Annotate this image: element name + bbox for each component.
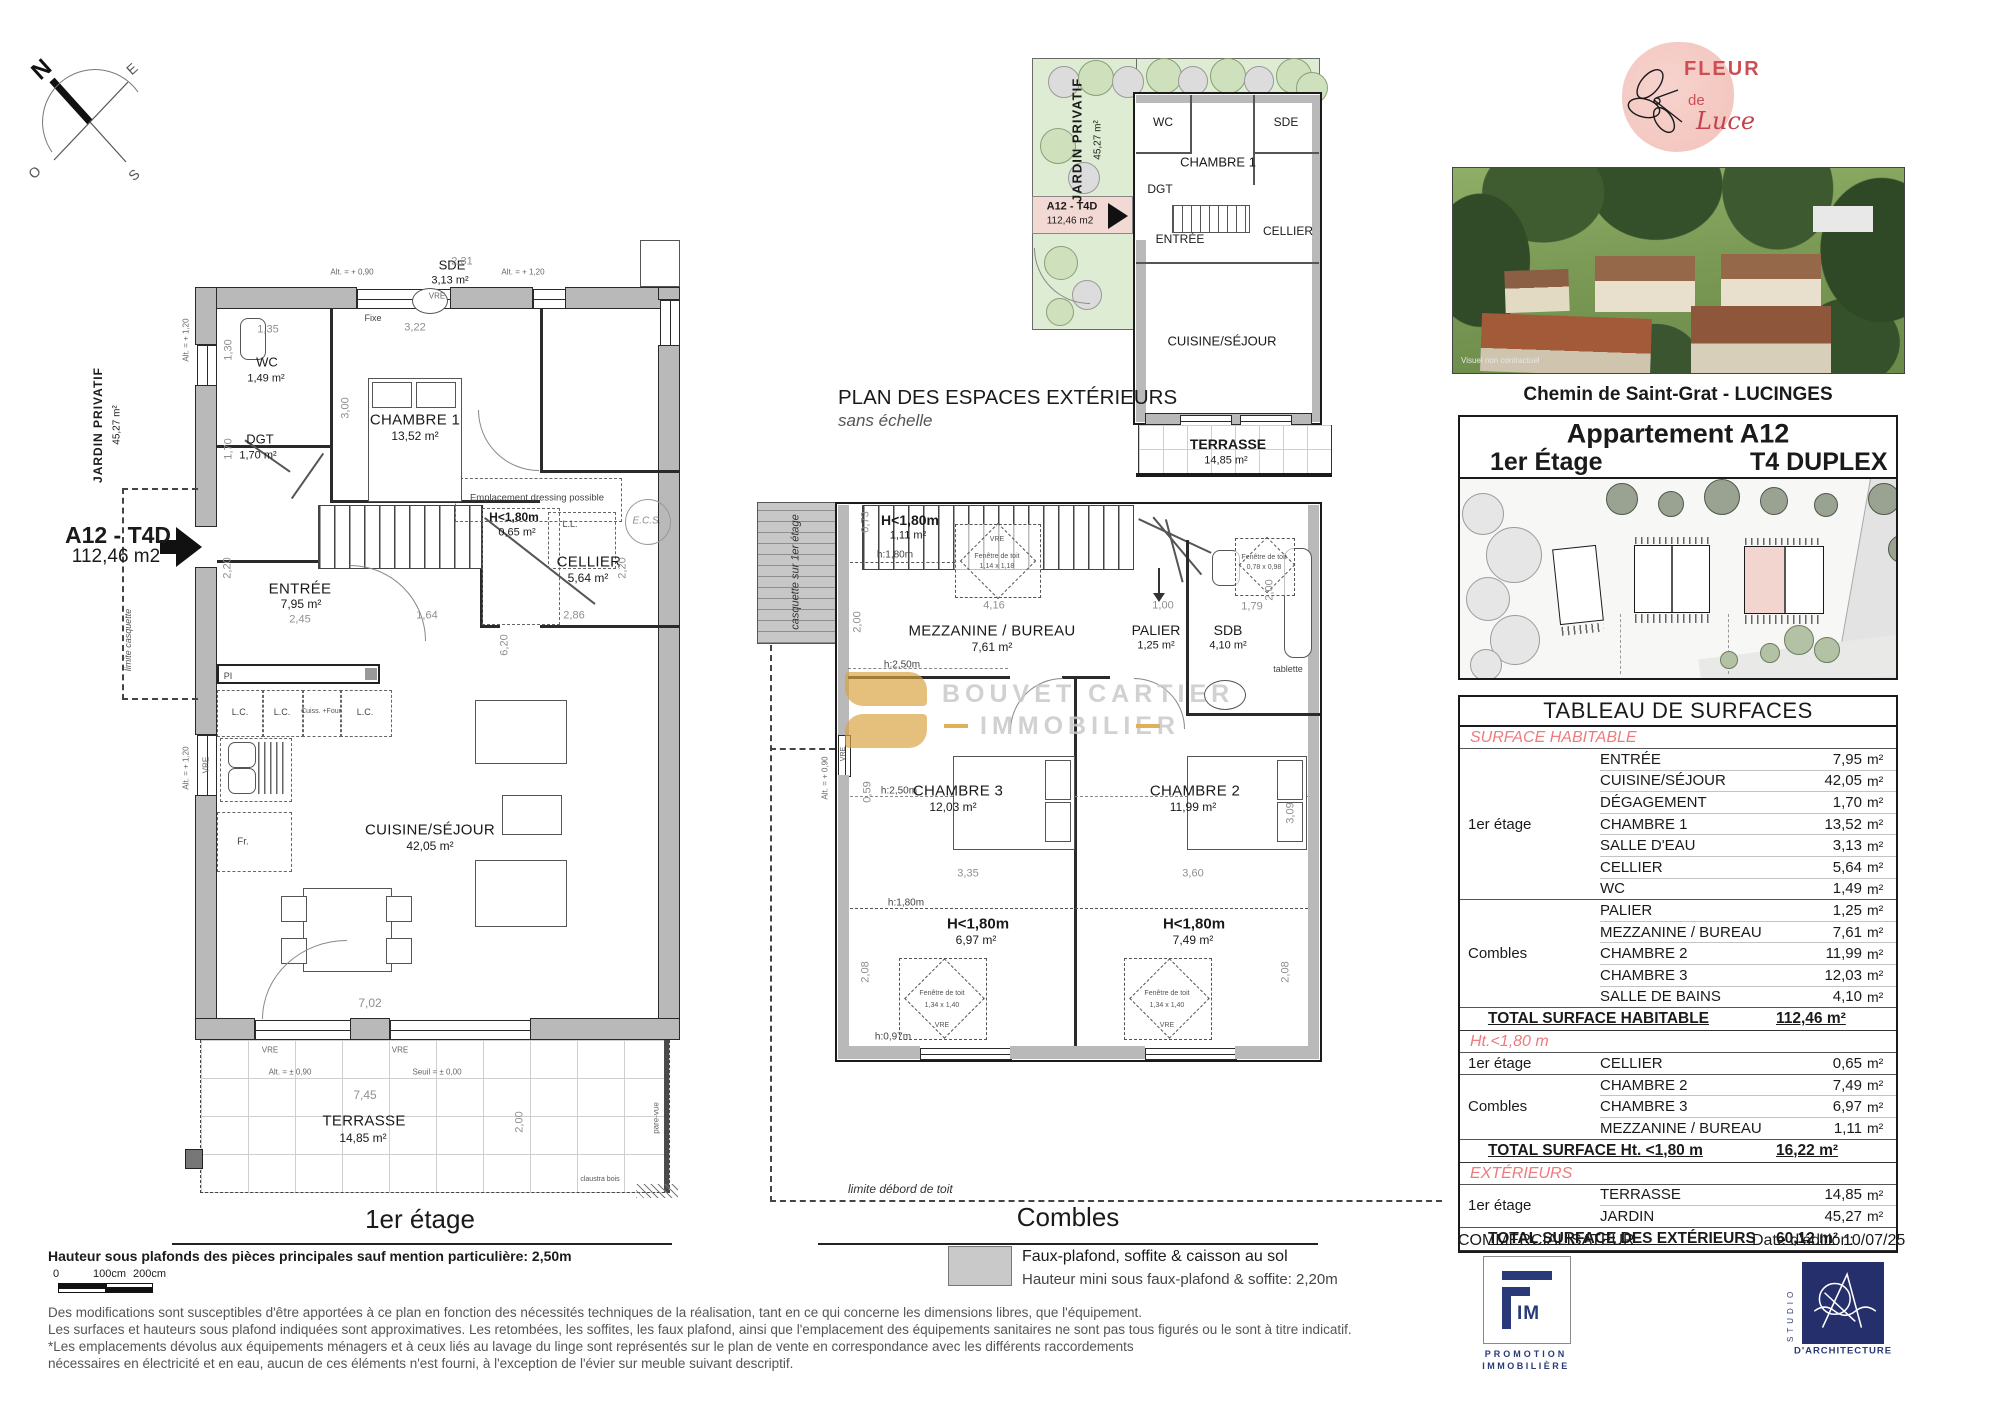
disclaimer-line: *Les emplacements dévolus aux équipement… <box>48 1339 1134 1355</box>
site-building <box>1552 545 1604 625</box>
title-underline <box>172 1243 672 1245</box>
table-group: 1er étageTERRASSE14,85m²JARDIN45,27m² <box>1460 1185 1896 1228</box>
table-row: CHAMBRE 211,99m² <box>1600 942 1896 964</box>
studio-caption: D'ARCHITECTURE <box>1794 1347 1892 1358</box>
washer-label: L.L. <box>562 519 577 529</box>
dim-label: 3,09 <box>1285 802 1298 823</box>
unit-code: A12 - T4D <box>1047 201 1098 214</box>
room-area-terrasse: 14,85 m² <box>339 1132 386 1146</box>
watermark-text: BOUVET CARTIER <box>942 680 1234 709</box>
chair <box>386 896 412 922</box>
dim-label: 6,20 <box>499 634 512 655</box>
photo-house <box>1721 254 1821 310</box>
cabinet-label: L.C. <box>232 707 249 717</box>
room-label-chambre1: CHAMBRE 1 <box>1180 156 1256 171</box>
surface-table-body: SURFACE HABITABLE1er étageENTRÉE7,95m²CU… <box>1460 727 1896 1251</box>
pillow <box>372 382 412 408</box>
table-room-name: PALIER <box>1600 902 1806 919</box>
alt-annotation: Alt. = + 0,90 <box>330 267 373 276</box>
tree-icon <box>1720 651 1738 669</box>
room-area-cellier: 5,64 m² <box>568 572 609 586</box>
table-row: WC1,49m² <box>1600 878 1896 900</box>
dim-label: 1,30 <box>223 339 236 360</box>
table-room-value: 1,49 <box>1806 880 1862 897</box>
room-label-cuisine: CUISINE/SÉJOUR <box>1167 335 1276 350</box>
tree-icon <box>1486 527 1542 583</box>
unit-area: 112,46 m2 <box>72 546 160 568</box>
table-group-label: 1er étage <box>1460 1185 1600 1227</box>
dim-label: 1,70 <box>223 438 236 459</box>
interior-wall <box>1062 676 1110 679</box>
room-label-chambre1: CHAMBRE 1 <box>370 411 460 428</box>
table-row: CELLIER5,64m² <box>1600 856 1896 878</box>
dim-label: 2,00 <box>514 1111 527 1132</box>
photo-house <box>1813 206 1873 232</box>
fixe-label: Fixe <box>364 313 381 323</box>
site-building <box>1744 546 1824 614</box>
room-label-wc: WC <box>1153 116 1173 130</box>
window <box>660 300 680 347</box>
coffee-table <box>502 795 562 835</box>
table-room-name: CHAMBRE 3 <box>1600 1098 1806 1115</box>
balcony-hatch <box>1635 537 1709 544</box>
table-row: TERRASSE14,85m² <box>1600 1185 1896 1206</box>
unit-arrow-icon <box>1108 203 1128 229</box>
interior-wall <box>1190 95 1192 153</box>
sink-drainer <box>258 742 286 794</box>
watermark-logo-icon <box>845 672 927 706</box>
tree-icon <box>1704 479 1740 515</box>
table-rooms: CHAMBRE 27,49m²CHAMBRE 36,97m²MEZZANINE … <box>1600 1075 1896 1139</box>
table-room-name: SALLE D'EAU <box>1600 837 1806 854</box>
tree-icon <box>1462 493 1504 535</box>
table-room-name: TERRASSE <box>1600 1186 1806 1203</box>
tree-icon <box>1760 643 1780 663</box>
tree-icon <box>1146 58 1182 94</box>
height-label: h:1,80m <box>877 549 913 561</box>
sink-bowl <box>228 768 256 794</box>
wall-segment <box>195 795 217 1040</box>
window-door <box>255 1020 352 1040</box>
table-room-name: CHAMBRE 1 <box>1600 816 1806 833</box>
plan2-title: Combles <box>1017 1203 1120 1233</box>
edition-date-value: 10/07/25 <box>1843 1232 1905 1250</box>
vre-label: VRE <box>201 757 210 773</box>
height-line <box>848 668 1008 669</box>
table-group-label: Combles <box>1460 900 1600 1007</box>
surface-table: TABLEAU DE SURFACES SURFACE HABITABLE1er… <box>1458 695 1898 1253</box>
interior-wall <box>1253 95 1255 185</box>
table-rooms: CELLIER0,65m² <box>1600 1053 1896 1074</box>
table-room-name: JARDIN <box>1600 1208 1806 1225</box>
plan1-title: 1er étage <box>365 1205 475 1235</box>
photo-house <box>1691 306 1831 374</box>
table-total-label: TOTAL SURFACE HABITABLE <box>1460 1010 1776 1028</box>
wall-segment <box>838 1046 920 1059</box>
fim-glyph-bar <box>1502 1287 1530 1296</box>
dim-label: 3,35 <box>957 868 978 881</box>
tree-icon <box>1760 487 1788 515</box>
project-address: Chemin de Saint-Grat - LUCINGES <box>1523 384 1832 406</box>
jardin-privatif-area: 45,27 m² <box>111 405 123 444</box>
wall-segment <box>1136 95 1319 103</box>
unit-highlight <box>1745 547 1784 613</box>
logo-word-fleur: FLEUR <box>1684 58 1761 81</box>
kitchen-beam <box>217 664 380 684</box>
seuil-annotation: Seuil = ± 0,00 <box>412 1067 461 1076</box>
watermark-logo-icon <box>845 714 927 748</box>
table-room-value: 14,85 <box>1806 1186 1862 1203</box>
room-label-chambre3: CHAMBRE 3 <box>913 782 1003 799</box>
roof-window-label: Fenêtre de toit <box>919 990 964 998</box>
party-wall <box>1784 547 1786 613</box>
table-row: SALLE DE BAINS4,10m² <box>1600 986 1896 1008</box>
roof-window-size: 1,34 x 1,40 <box>1150 1002 1185 1010</box>
room-label-cellier: CELLIER <box>557 553 622 570</box>
roof-window-size: 0,78 x 0,98 <box>1247 564 1282 572</box>
vre-label: VRE <box>392 1045 408 1054</box>
site-plan <box>1460 479 1896 678</box>
compass-s: S <box>125 166 143 184</box>
table-room-name: DÉGAGEMENT <box>1600 794 1806 811</box>
table-section-label: SURFACE HABITABLE <box>1460 727 1896 749</box>
roof-limit-label: limite débord de toit <box>848 1183 953 1197</box>
table-room-unit: m² <box>1862 902 1896 918</box>
chair <box>281 896 307 922</box>
wall-segment <box>658 345 680 1040</box>
tablette-label: tablette <box>1273 664 1303 674</box>
jardin-privatif-label: JARDIN PRIVATIF <box>1071 78 1086 202</box>
room-label-terrasse: TERRASSE <box>322 1112 405 1129</box>
alt-annotation: Alt. = + 0,90 <box>820 756 829 799</box>
disclaimer-line: Les surfaces et hauteurs sous plafond in… <box>48 1322 1352 1338</box>
room-area-wc: 1,49 m² <box>247 373 284 386</box>
table-room-name: MEZZANINE / BUREAU <box>1600 1120 1806 1137</box>
roof-window-label: Fenêtre de toit <box>1144 990 1189 998</box>
dim-label: 4,16 <box>983 600 1004 613</box>
table-row: JARDIN45,27m² <box>1600 1205 1896 1227</box>
room-area-palier: 1,25 m² <box>1137 640 1174 653</box>
low-height-area: 7,49 m² <box>1173 934 1214 948</box>
fridge-zone <box>217 812 292 872</box>
limite-casquette-label: limite casquette <box>123 609 133 672</box>
dim-label: 7,45 <box>353 1089 376 1103</box>
table-room-value: 1,25 <box>1806 902 1862 919</box>
table-room-unit: m² <box>1862 816 1896 832</box>
legend-swatch <box>948 1246 1012 1286</box>
compass-e: E <box>123 60 141 78</box>
interior-wall <box>330 309 333 500</box>
dim-label: 2,86 <box>563 610 584 623</box>
wall-segment <box>838 775 849 1046</box>
wall-segment <box>195 287 217 345</box>
low-height-area: 6,97 m² <box>956 934 997 948</box>
party-wall <box>1671 546 1673 612</box>
table-room-unit: m² <box>1862 989 1896 1005</box>
table-room-value: 4,10 <box>1806 988 1862 1005</box>
terrace-edge <box>1136 473 1332 477</box>
low-height-area: 1,11 m² <box>890 530 926 543</box>
room-area-chambre2: 11,99 m² <box>1170 801 1216 815</box>
interior-wall <box>480 625 500 628</box>
apartment-floor: 1er Étage <box>1490 448 1603 477</box>
height-label: h:0,97m <box>875 1031 911 1043</box>
room-label-dgt: DGT <box>1147 183 1172 197</box>
roof-window-size: 1,34 x 1,40 <box>925 1002 960 1010</box>
height-label: h:1,80m <box>888 897 924 909</box>
sofa <box>475 700 567 764</box>
tree-icon <box>1210 58 1246 94</box>
table-room-name: CHAMBRE 3 <box>1600 967 1806 984</box>
guide-line <box>1620 614 1621 674</box>
height-label: h:2,50m <box>881 785 917 797</box>
table-room-name: CELLIER <box>1600 859 1806 876</box>
porch-limit <box>122 488 198 490</box>
fim-caption2: IMMOBILIÈRE <box>1482 1361 1570 1371</box>
table-room-value: 3,13 <box>1806 837 1862 854</box>
apartment-title: Appartement A12 <box>1567 418 1790 449</box>
table-row: DÉGAGEMENT1,70m² <box>1600 791 1896 813</box>
wall-segment <box>350 1018 390 1040</box>
tree-icon <box>1466 577 1510 621</box>
exterior-plan-title: PLAN DES ESPACES EXTÉRIEURS <box>838 386 1177 410</box>
window-slider <box>390 1020 532 1040</box>
scalebar-100: 100cm <box>93 1268 126 1281</box>
dim-label: 0,59 <box>862 781 875 802</box>
dim-label: 2,08 <box>1280 961 1293 982</box>
roof-overhang-limit <box>770 748 835 750</box>
page: N E S O <box>0 0 2000 1413</box>
table-room-value: 1,70 <box>1806 794 1862 811</box>
table-room-value: 12,03 <box>1806 967 1862 984</box>
jardin-privatif-label: JARDIN PRIVATIF <box>92 367 106 483</box>
tree-icon <box>1470 649 1502 678</box>
table-row: CHAMBRE 27,49m² <box>1600 1075 1896 1096</box>
room-area-sdb: 4,10 m² <box>1209 640 1246 653</box>
unit-code: A12 - T4D <box>65 522 171 548</box>
table-room-value: 7,61 <box>1806 924 1862 941</box>
dim-label: 1,00 <box>1152 600 1173 613</box>
compass-rose-icon: N E S O <box>18 30 168 190</box>
dressing-note: Emplacement dressing possible <box>470 494 604 505</box>
room-label-wc: WC <box>256 356 278 371</box>
room-label-entree: ENTRÉE <box>1156 233 1205 247</box>
claustra-hatch <box>636 1184 678 1198</box>
pare-vue-screen <box>664 1040 669 1192</box>
fim-glyph-bar <box>1502 1271 1552 1280</box>
room-area-sde: 3,13 m² <box>431 275 468 288</box>
dim-label: 3,60 <box>1182 868 1203 881</box>
table-room-unit: m² <box>1862 1120 1896 1136</box>
height-line <box>850 562 955 563</box>
wall-segment <box>450 287 533 309</box>
studio-vertical-text: STUDIO <box>1786 1266 1795 1342</box>
table-rooms: TERRASSE14,85m²JARDIN45,27m² <box>1600 1185 1896 1227</box>
table-room-name: WC <box>1600 880 1806 897</box>
table-room-unit: m² <box>1862 1077 1896 1093</box>
jardin-privatif-area: 45,27 m² <box>1092 120 1104 159</box>
table-room-value: 11,99 <box>1806 945 1862 962</box>
dim-label: 1,35 <box>257 324 278 337</box>
edition-date-label: Date d'édition: <box>1752 1232 1854 1250</box>
dim-label: 7,02 <box>358 997 381 1011</box>
table-rooms: ENTRÉE7,95m²CUISINE/SÉJOUR42,05m²DÉGAGEM… <box>1600 749 1896 899</box>
dim-label: 3,00 <box>340 397 353 418</box>
window <box>533 289 567 309</box>
table-room-value: 7,49 <box>1806 1077 1862 1094</box>
dim-label: 2,20 <box>617 557 630 578</box>
apartment-type: T4 DUPLEX <box>1750 448 1888 477</box>
scalebar-0: 0 <box>53 1268 59 1281</box>
studio-logo <box>1802 1262 1884 1344</box>
studio-logo-art-icon <box>1802 1262 1884 1344</box>
terrace-hatch <box>1635 614 1709 623</box>
dim-label: 1,64 <box>416 610 437 623</box>
table-room-name: CUISINE/SÉJOUR <box>1600 772 1806 789</box>
table-section-label: EXTÉRIEURS <box>1460 1163 1896 1185</box>
table-group-label: 1er étage <box>1460 749 1600 899</box>
table-room-name: ENTRÉE <box>1600 751 1806 768</box>
door-swing <box>350 565 426 641</box>
water-heater-label: E.C.S. <box>633 515 662 527</box>
scalebar-200: 200cm <box>133 1268 166 1281</box>
shower <box>640 240 680 287</box>
interior-wall <box>540 309 543 470</box>
post <box>365 668 377 680</box>
roof-window-label: Fenêtre de toit <box>1241 554 1286 562</box>
table-room-value: 5,64 <box>1806 859 1862 876</box>
vre-label: VRE <box>429 291 445 300</box>
room-label-dgt: DGT <box>246 433 273 448</box>
table-total-value: 112,46 m² <box>1776 1010 1896 1028</box>
oven-label: Cuiss. +Four <box>301 708 341 716</box>
scalebar-segment <box>106 1288 153 1293</box>
table-room-value: 1,11 <box>1806 1120 1862 1137</box>
table-row: CHAMBRE 36,97m² <box>1600 1095 1896 1117</box>
site-building <box>1634 545 1710 613</box>
table-group-label: Combles <box>1460 1075 1600 1139</box>
table-room-unit: m² <box>1862 946 1896 962</box>
watermark-dash <box>1136 724 1160 728</box>
height-label: h:2,50m <box>884 659 920 671</box>
table-room-unit: m² <box>1862 838 1896 854</box>
table-group: ComblesCHAMBRE 27,49m²CHAMBRE 36,97m²MEZ… <box>1460 1075 1896 1140</box>
table-row: CHAMBRE 312,03m² <box>1600 964 1896 986</box>
sofa <box>475 860 567 927</box>
room-area-cuisine: 42,05 m² <box>406 840 453 854</box>
unit-arrow-icon <box>176 527 202 567</box>
legend-line1: Faux-plafond, soffite & caisson au sol <box>1022 1248 1288 1266</box>
post <box>186 1150 202 1168</box>
table-group-label: 1er étage <box>1460 1053 1600 1074</box>
room-label-chambre2: CHAMBRE 2 <box>1150 782 1240 799</box>
door-leaf <box>291 453 324 499</box>
vre-label: VRE <box>1160 1022 1174 1030</box>
low-height-label: H<1,80m <box>1163 915 1225 932</box>
alt-annotation: Alt. = ± 0,90 <box>269 1067 312 1076</box>
table-room-unit: m² <box>1862 773 1896 789</box>
dim-label: 2,20 <box>222 557 235 578</box>
dim-label: 2,00 <box>1264 579 1277 600</box>
dim-label: 1,79 <box>1241 601 1262 614</box>
alt-annotation: Alt. = + 1,20 <box>181 318 190 361</box>
interior-wall <box>540 470 680 473</box>
table-room-value: 0,65 <box>1806 1055 1862 1072</box>
pillow <box>1045 802 1071 842</box>
pillow <box>1277 760 1303 800</box>
photo-house <box>1595 256 1695 312</box>
balcony-hatch <box>1745 538 1823 545</box>
table-room-unit: m² <box>1862 924 1896 940</box>
window <box>920 1048 1012 1060</box>
chair <box>386 938 412 964</box>
table-room-name: CELLIER <box>1600 1055 1806 1072</box>
table-group: 1er étageCELLIER0,65m² <box>1460 1053 1896 1075</box>
pi-label: PI <box>224 671 233 681</box>
table-room-value: 7,95 <box>1806 751 1862 768</box>
commercialisateur-label: COMMERCIALISATEUR <box>1458 1232 1635 1250</box>
table-room-unit: m² <box>1862 794 1896 810</box>
room-label-cuisine: CUISINE/SÉJOUR <box>365 821 495 838</box>
vre-label: VRE <box>935 1022 949 1030</box>
tree-icon <box>1658 491 1684 517</box>
table-group: ComblesPALIER1,25m²MEZZANINE / BUREAU7,6… <box>1460 900 1896 1008</box>
wall-segment <box>195 385 217 527</box>
pillow <box>416 382 456 408</box>
vre-label: VRE <box>262 1045 278 1054</box>
table-total-label: TOTAL SURFACE Ht. <1,80 m <box>1460 1142 1776 1160</box>
fim-logo: IM <box>1483 1256 1571 1344</box>
interior-wall <box>1253 152 1319 154</box>
photo-caption: Visuel non contractuel <box>1461 356 1540 365</box>
tree-icon <box>1814 637 1840 663</box>
photo-house <box>1504 269 1569 313</box>
table-room-value: 45,27 <box>1806 1208 1862 1225</box>
terrace <box>200 1040 670 1193</box>
table-room-unit: m² <box>1862 859 1896 875</box>
project-photo: Visuel non contractuel <box>1452 167 1905 374</box>
surface-table-title: TABLEAU DE SURFACES <box>1460 697 1896 727</box>
logo-word-luce: Luce <box>1696 108 1755 136</box>
wall-segment <box>838 505 849 735</box>
room-label-entree: ENTRÉE <box>269 580 332 597</box>
door-swing <box>478 410 539 471</box>
dim-label: 2,31 <box>451 256 472 269</box>
table-group: 1er étageENTRÉE7,95m²CUISINE/SÉJOUR42,05… <box>1460 749 1896 900</box>
exterior-plan-subtitle: sans échelle <box>838 411 933 431</box>
fridge-label: Fr. <box>237 836 249 848</box>
window <box>197 345 217 387</box>
dim-label: 2,00 <box>852 611 865 632</box>
disclaimer-line: Des modifications sont susceptibles d'êt… <box>48 1305 1142 1321</box>
roof-window-size: 1,14 x 1,18 <box>980 563 1015 571</box>
table-room-name: CHAMBRE 2 <box>1600 1077 1806 1094</box>
table-room-unit: m² <box>1862 881 1896 897</box>
ceiling-height-note: Hauteur sous plafonds des pièces princip… <box>48 1248 572 1264</box>
low-height-label: H<1,80m <box>881 512 939 528</box>
wall-segment <box>658 287 680 300</box>
table-room-value: 42,05 <box>1806 772 1862 789</box>
low-height-label: H<1,80m <box>947 915 1009 932</box>
casquette-label: casquette sur 1er étage <box>790 514 803 630</box>
table-row: CELLIER0,65m² <box>1600 1053 1896 1074</box>
brand-logo: FLEUR de Luce <box>1622 42 1740 158</box>
cabinet-label: L.C. <box>357 707 374 717</box>
table-room-value: 13,52 <box>1806 816 1862 833</box>
room-label-palier: PALIER <box>1132 622 1181 638</box>
table-room-unit: m² <box>1862 1099 1896 1115</box>
wall-segment <box>195 287 357 309</box>
